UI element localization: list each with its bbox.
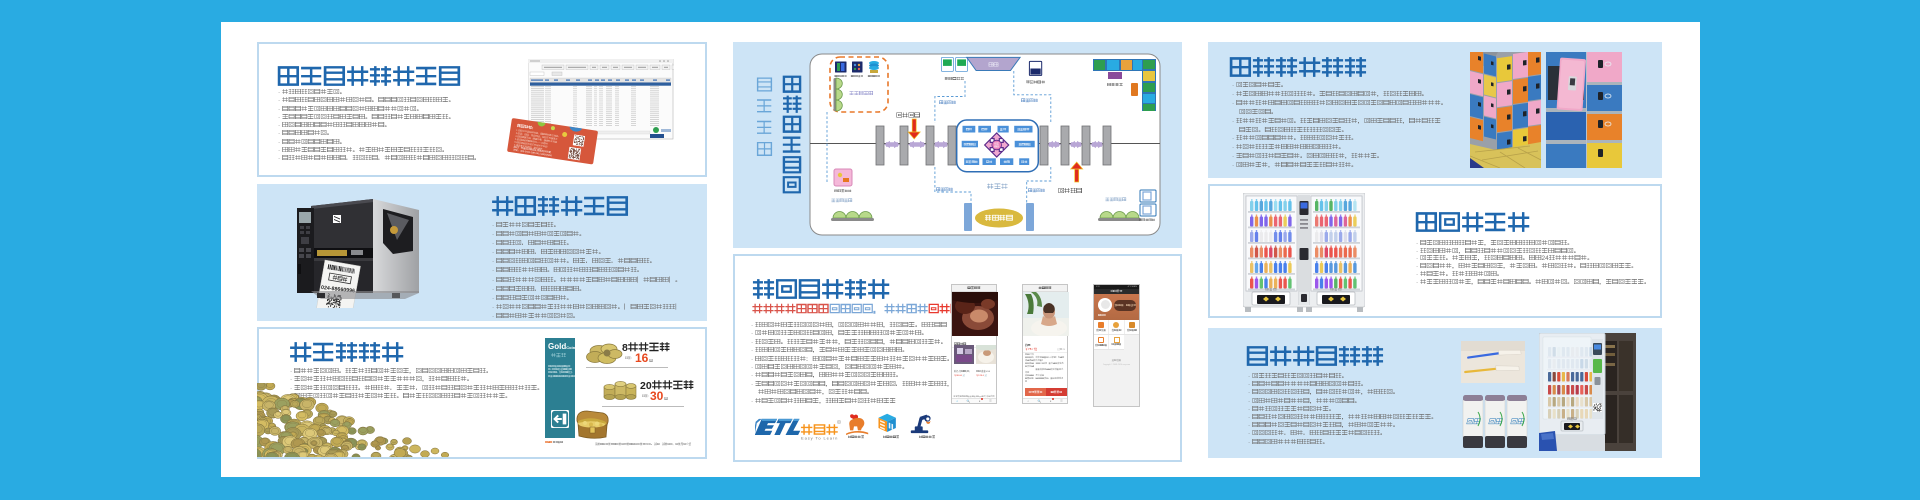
svg-text:取物口: 取物口	[1566, 417, 1577, 421]
svg-text:休息等候区: 休息等候区	[831, 198, 853, 203]
svg-text:自助售票机: 自助售票机	[1138, 218, 1156, 222]
svg-text:自助出币机: 自助出币机	[834, 75, 848, 78]
svg-text:迎宾: 迎宾	[986, 160, 992, 164]
svg-text:自助续挂机: 自助续挂机	[834, 189, 852, 193]
svg-text:Easy To Learn: Easy To Learn	[801, 436, 838, 441]
svg-text:大堂入口: 大堂入口	[984, 214, 1013, 223]
svg-text:闸机出口: 闸机出口	[896, 113, 920, 120]
svg-text:自助鞋柜: 自助鞋柜	[1107, 82, 1123, 87]
svg-text:自助咖啡机: 自助咖啡机	[867, 75, 881, 78]
svg-text:人流走向: 人流走向	[1021, 98, 1039, 103]
svg-text:自助结账机: 自助结账机	[945, 77, 964, 81]
svg-text:取 物 口: 取 物 口	[1265, 288, 1278, 292]
svg-text:人流走向: 人流走向	[1028, 188, 1046, 193]
svg-text:自助售货机: 自助售货机	[850, 74, 864, 78]
svg-text:查询: 查询	[1020, 160, 1027, 164]
svg-text:人流走向: 人流走向	[936, 187, 954, 192]
svg-text:服务台: 服务台	[987, 183, 1008, 191]
svg-text:服务咨询: 服务咨询	[965, 160, 978, 164]
svg-text:闸机入口: 闸机入口	[1058, 188, 1082, 195]
svg-text:休息等待区: 休息等待区	[1105, 197, 1127, 202]
svg-text:结账: 结账	[965, 128, 972, 132]
svg-text:服务咨询: 服务咨询	[1016, 128, 1029, 132]
svg-text:人员: 人员	[993, 145, 999, 148]
svg-text:入口集散: 入口集散	[1018, 142, 1032, 146]
svg-text:结账: 结账	[981, 128, 988, 132]
svg-text:R: R	[838, 420, 840, 424]
svg-text:人流走向: 人流走向	[939, 100, 957, 105]
svg-text:充值: 充值	[1000, 128, 1006, 132]
svg-text:休息等候区: 休息等候区	[849, 91, 873, 97]
svg-text:疏导排队机: 疏导排队机	[1026, 81, 1045, 85]
svg-text:售票: 售票	[1003, 160, 1010, 164]
svg-text:取 物 口: 取 物 口	[1330, 288, 1343, 292]
svg-text:出口集散: 出口集散	[964, 142, 977, 146]
svg-text:浴区: 浴区	[988, 63, 998, 69]
